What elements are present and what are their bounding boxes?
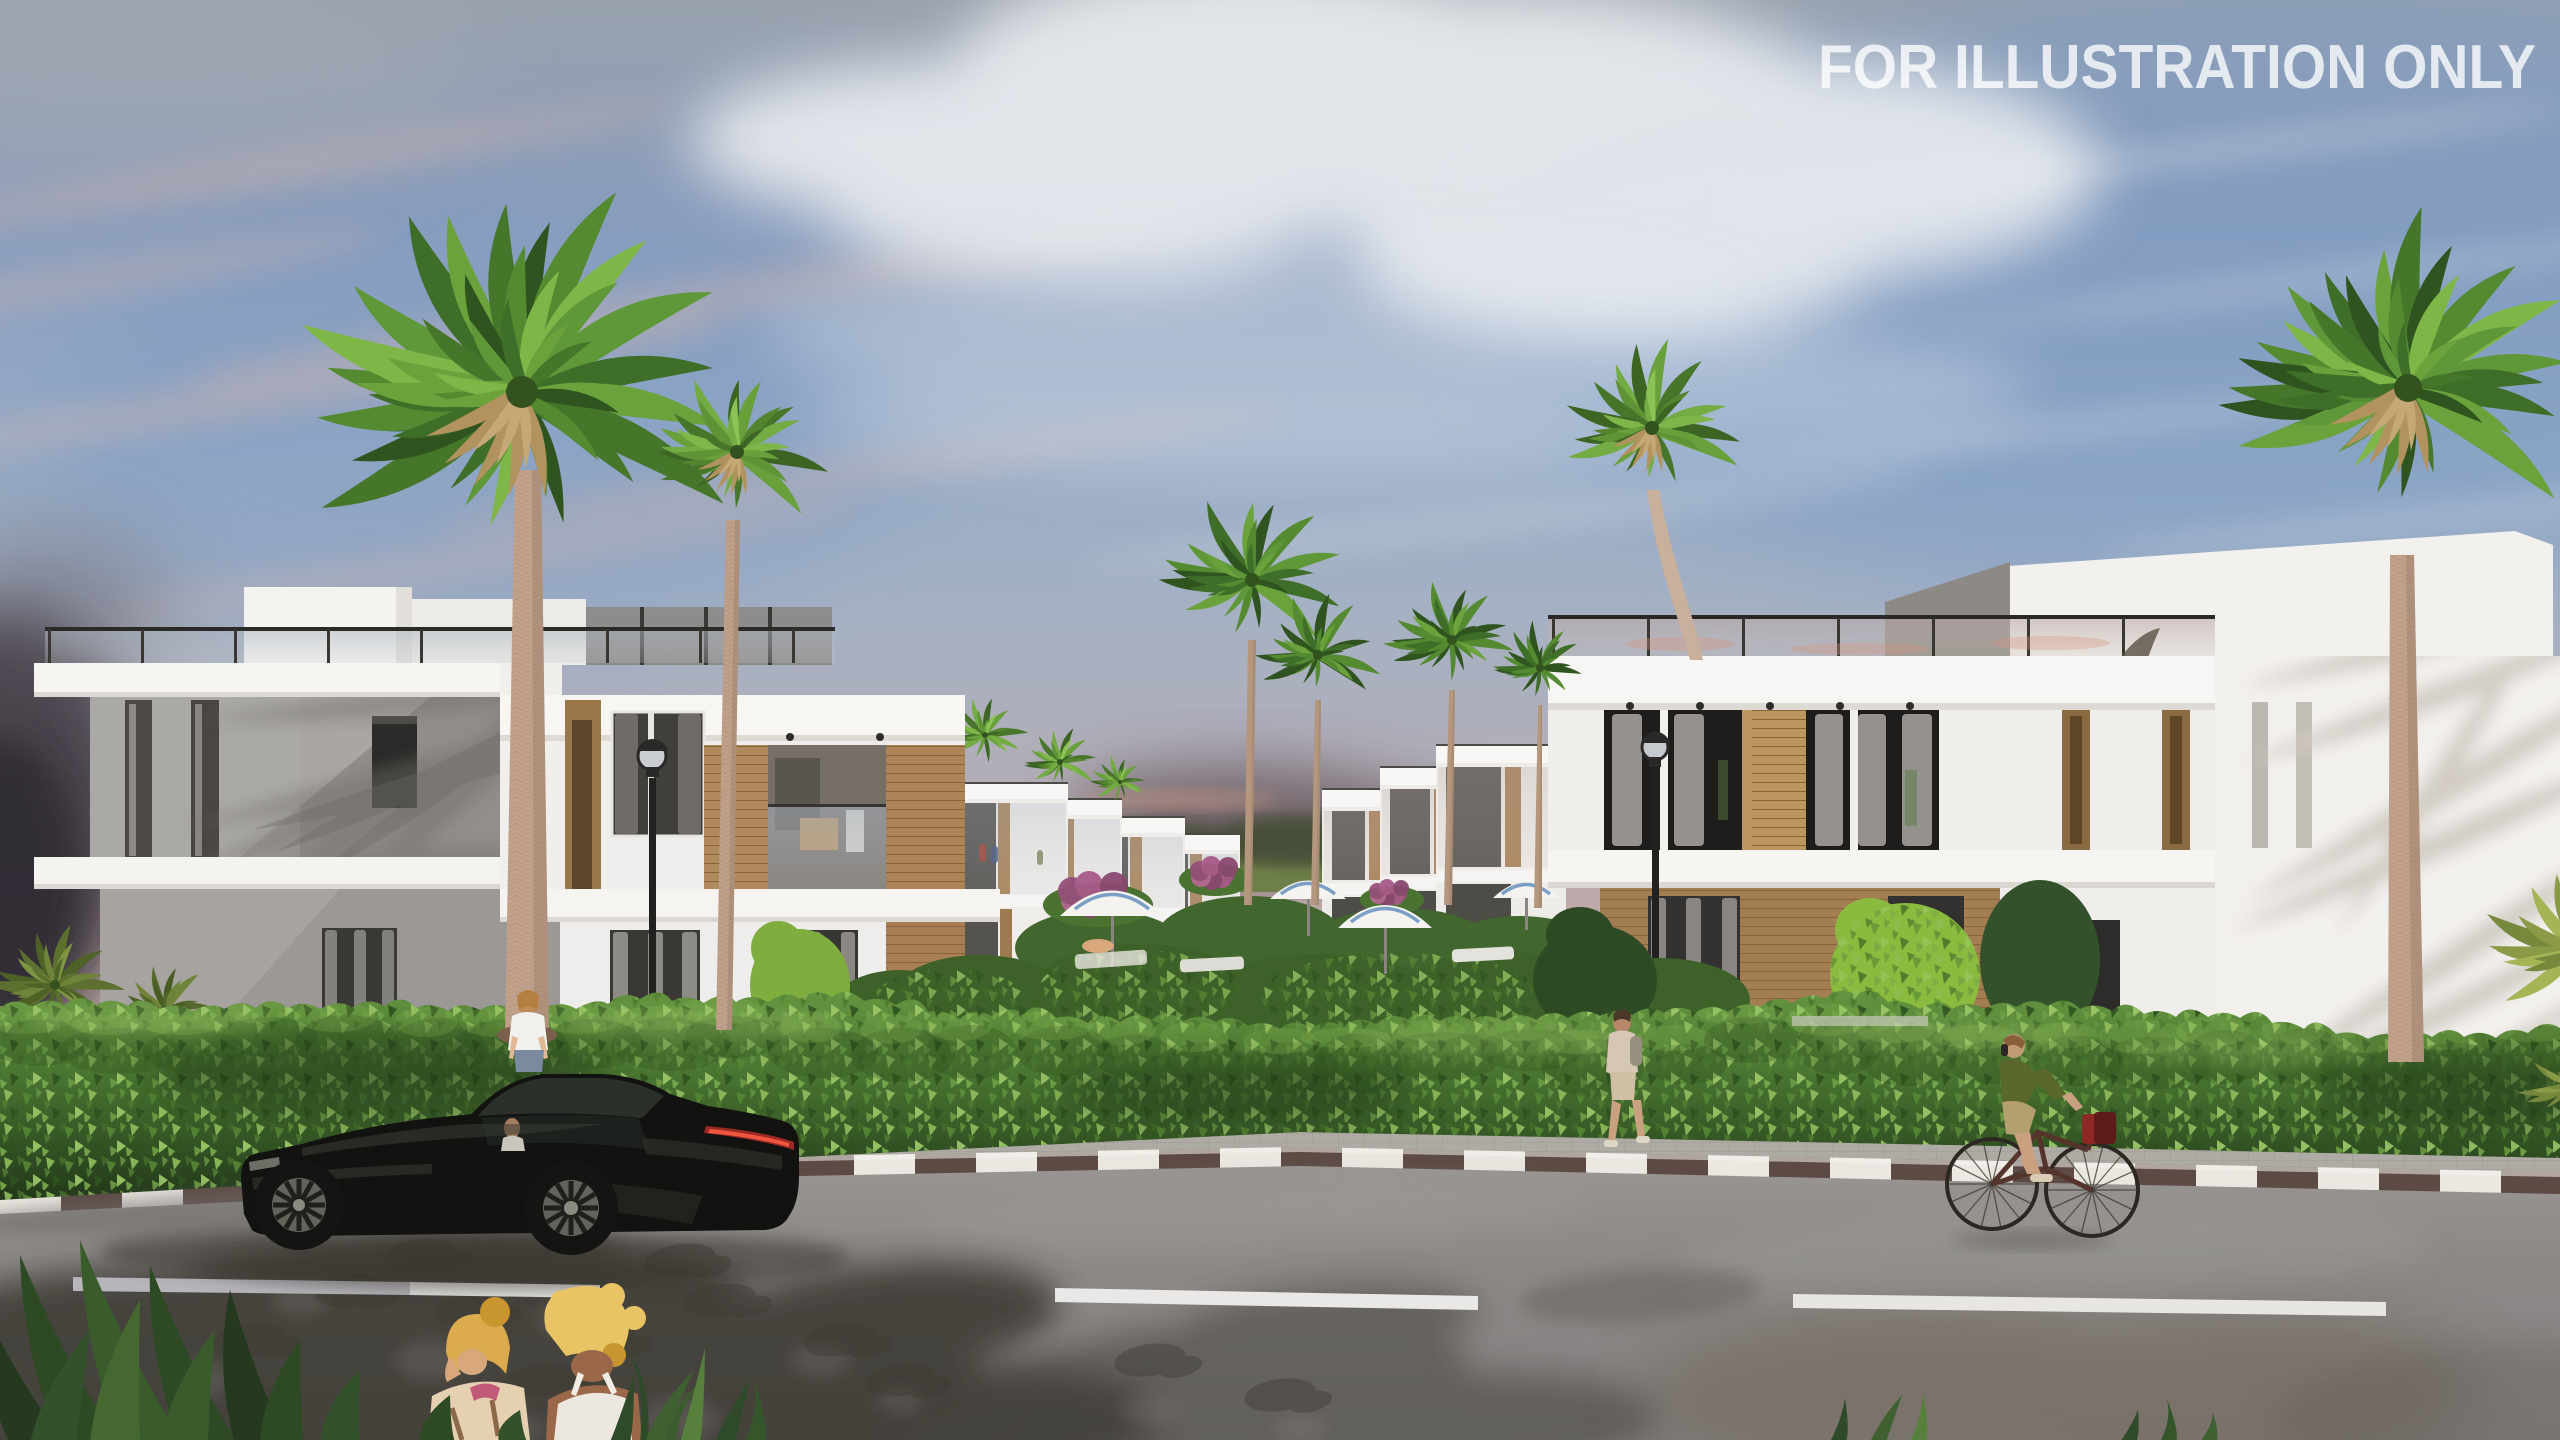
svg-text:FOR ILLUSTRATION ONLY: FOR ILLUSTRATION ONLY bbox=[1818, 33, 2536, 102]
